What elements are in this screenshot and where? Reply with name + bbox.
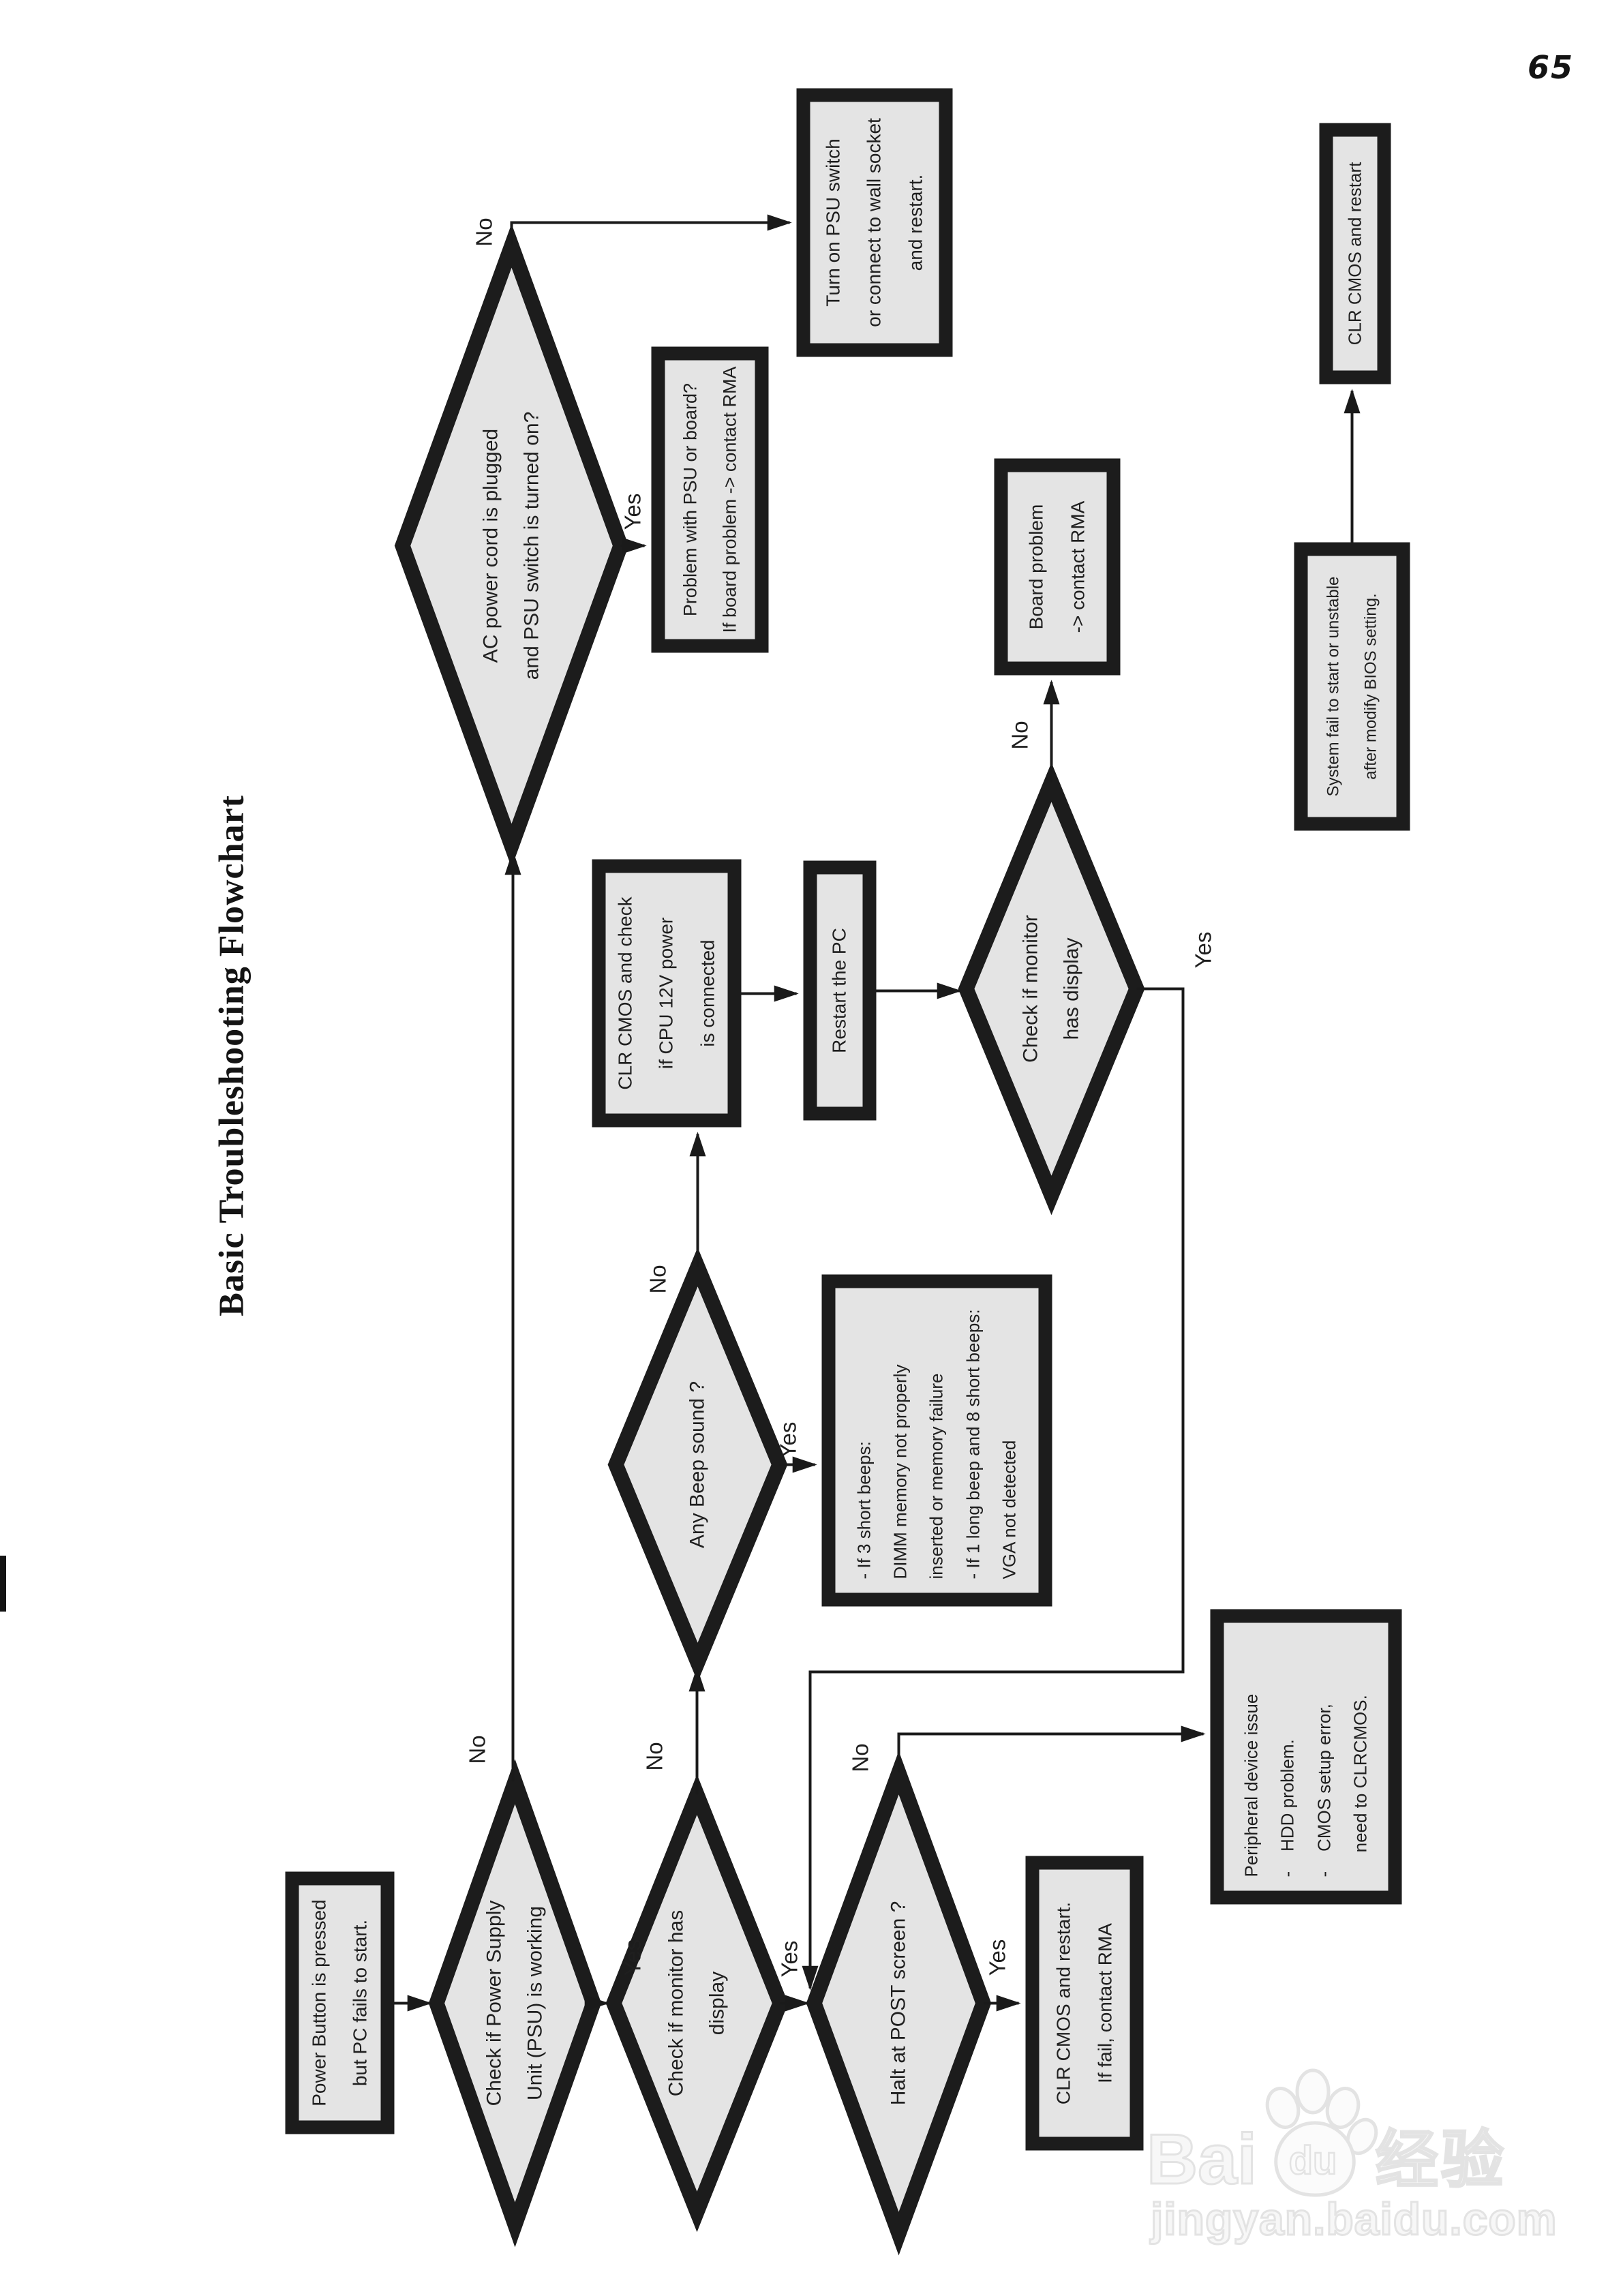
watermark-url: jingyan.baidu.com <box>1147 2196 1603 2241</box>
node-peripheral-issue: Peripheral device issue - HDD problem. -… <box>1210 1609 1401 1904</box>
label-monitor2-no: No <box>1007 721 1033 749</box>
diamond-any-beep-text: Any Beep sound ? <box>673 1321 721 1607</box>
connector-ac-no-to-turnon <box>511 222 789 245</box>
node-problem-psu-board: Problem with PSU or board? If board prob… <box>651 346 768 652</box>
baidu-paw-icon: du <box>1250 2068 1380 2205</box>
node-problem-psu-board-text: Problem with PSU or board? If board prob… <box>670 360 749 639</box>
document-page: { "page": { "number": "65" }, "title": "… <box>0 0 1623 2296</box>
diamond-ac-power-text: AC power cord is plugged and PSU switch … <box>464 354 559 736</box>
connector-post-no-to-peripheral <box>898 1734 1203 1772</box>
node-beep-info: - If 3 short beeps: DIMM memory not prop… <box>821 1274 1052 1606</box>
flowchart-canvas: Basic Troubleshooting Flowchart Power Bu… <box>0 0 1623 2296</box>
watermark-du-text: du <box>1288 2139 1337 2183</box>
label-psu-no: No <box>464 1735 490 1764</box>
label-monitor2-yes: Yes <box>1190 931 1216 968</box>
label-ac-yes: Yes <box>620 493 646 530</box>
node-clr-cmos-restart-rma: CLR CMOS and restart. If fail, contact R… <box>1025 1856 1143 2150</box>
watermark-bai-text: Bai <box>1147 2124 1257 2195</box>
diamond-check-monitor-text: Check if monitor has display <box>652 1867 741 2139</box>
diamond-check-psu-text: Check if Power Supply Unit (PSU) is work… <box>470 1853 559 2153</box>
node-board-problem-text: Board problem -> contact RMA <box>1016 472 1097 661</box>
node-restart-pc-text: Restart the PC <box>819 874 860 1106</box>
node-clr-cmos-restart: CLR CMOS and restart <box>1319 123 1391 384</box>
diamond-halt-post-text: Halt at POST screen ? <box>875 1846 922 2160</box>
node-board-problem: Board problem -> contact RMA <box>994 458 1120 675</box>
flowchart-title: Basic Troubleshooting Flowchart <box>211 769 252 1342</box>
label-ac-no: No <box>471 217 497 246</box>
node-turn-on-psu: Turn on PSU switch or connect to wall so… <box>796 88 952 357</box>
watermark-cn-text: 经验 <box>1376 2126 1506 2195</box>
label-monitor-no: No <box>641 1742 667 1770</box>
label-psu-yes: Yes <box>620 1939 646 1976</box>
node-clr-cmos-restart-text: CLR CMOS and restart <box>1337 136 1373 370</box>
label-beep-no: No <box>645 1265 671 1293</box>
node-start-text: Power Button is pressed but PC fails to … <box>299 1885 380 2120</box>
label-monitor-yes: Yes <box>776 1940 802 1977</box>
node-system-fail: System fail to start or unstable after m… <box>1294 542 1410 830</box>
node-beep-info-text: - If 3 short beeps: DIMM memory not prop… <box>846 1288 1027 1592</box>
node-clr-cmos-12v: CLR CMOS and check if CPU 12V power is c… <box>592 859 741 1127</box>
diamond-check-monitor-2-text: Check if monitor has display <box>1003 859 1099 1118</box>
label-beep-yes: Yes <box>775 1421 801 1458</box>
node-turn-on-psu-text: Turn on PSU switch or connect to wall so… <box>813 102 936 343</box>
node-start: Power Button is pressed but PC fails to … <box>285 1871 394 2134</box>
node-system-fail-text: System fail to start or unstable after m… <box>1314 556 1389 817</box>
label-post-no: No <box>847 1743 873 1772</box>
node-peripheral-issue-text: Peripheral device issue - HDD problem. -… <box>1233 1622 1378 1890</box>
baidu-watermark: Bai du 经验 jingyan.baidu.com <box>1147 2066 1603 2277</box>
label-post-yes: Yes <box>984 1939 1010 1976</box>
node-clr-cmos-restart-rma-text: CLR CMOS and restart. If fail, contact R… <box>1043 1869 1125 2136</box>
node-restart-pc: Restart the PC <box>803 860 876 1120</box>
node-clr-cmos-12v-text: CLR CMOS and check if CPU 12V power is c… <box>605 873 728 1113</box>
